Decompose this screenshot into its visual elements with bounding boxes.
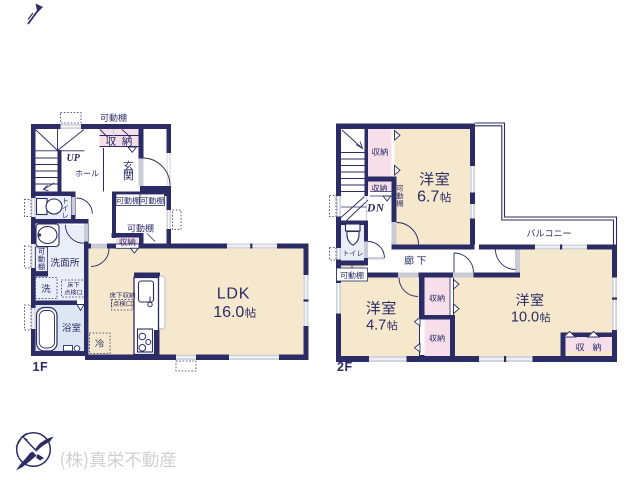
svg-text:1F: 1F xyxy=(33,360,49,374)
svg-text:2F: 2F xyxy=(337,360,353,374)
svg-text:6.7: 6.7 xyxy=(417,189,439,206)
svg-text:UP: UP xyxy=(67,153,81,164)
svg-text:16.0: 16.0 xyxy=(213,304,244,321)
svg-text:DN: DN xyxy=(366,203,385,215)
svg-text:4.7: 4.7 xyxy=(366,318,386,334)
svg-text:10.0: 10.0 xyxy=(511,310,539,326)
svg-text:LDK: LDK xyxy=(217,286,251,303)
